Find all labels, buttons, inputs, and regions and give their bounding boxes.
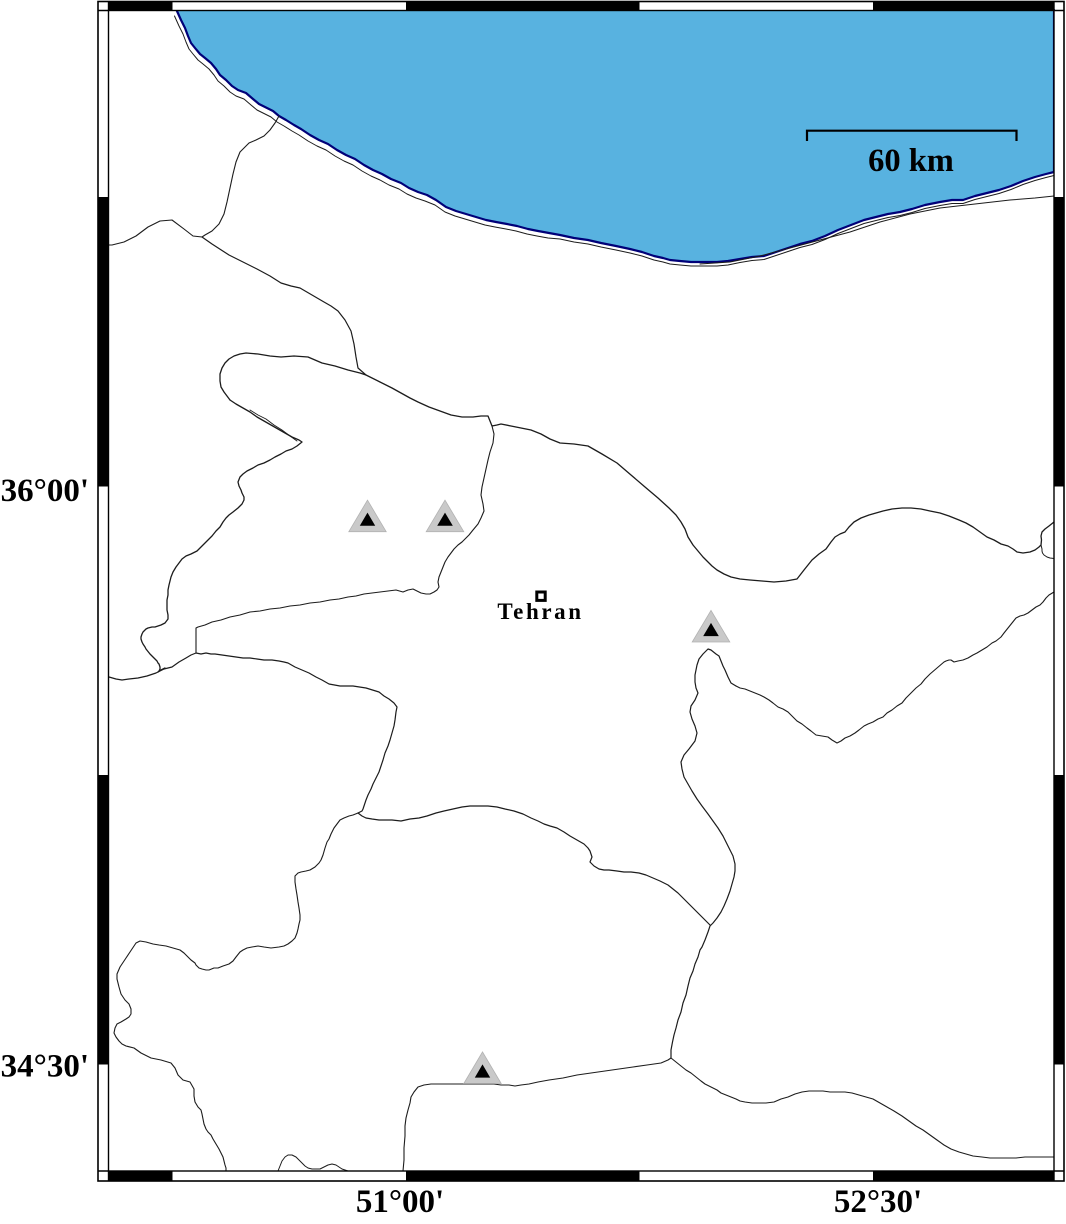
svg-text:52°30': 52°30' bbox=[834, 1184, 922, 1219]
svg-text:36°00': 36°00' bbox=[1, 473, 89, 509]
svg-text:34°30': 34°30' bbox=[1, 1049, 89, 1085]
svg-text:Tehran: Tehran bbox=[497, 599, 583, 624]
svg-text:51°00': 51°00' bbox=[356, 1184, 444, 1219]
svg-text:60 km: 60 km bbox=[868, 143, 954, 179]
